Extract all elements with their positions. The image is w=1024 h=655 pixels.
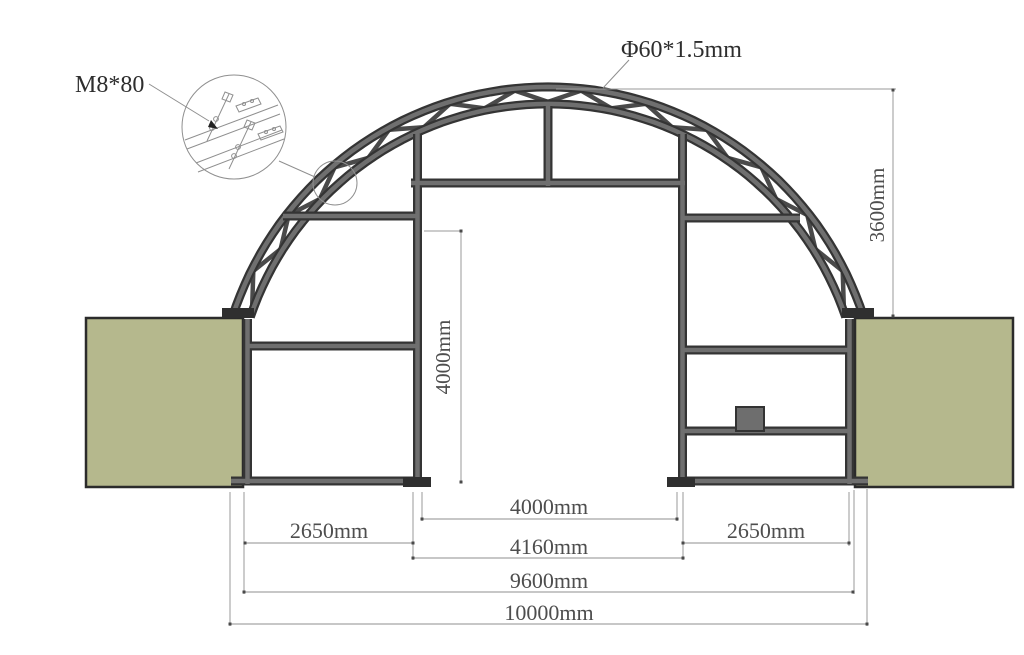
- dim-end-marker: [848, 542, 851, 545]
- dim-door-frame-width-label: 4160mm: [510, 534, 588, 559]
- dim-total-span-label: 10000mm: [504, 600, 593, 625]
- dim-end-marker: [892, 89, 895, 92]
- interior-frame: [222, 106, 874, 487]
- bolt-detail-icon: [185, 92, 284, 172]
- dim-door-height-label: 4000mm: [431, 320, 455, 395]
- shelter-cross-section-drawing: M8*80 Φ60*1.5mm 3600mm 4000mm 4000mm 265…: [0, 0, 1024, 655]
- dim-end-marker: [682, 542, 685, 545]
- base-plate: [403, 477, 431, 487]
- dim-right-bay-label: 2650mm: [727, 518, 805, 543]
- dim-arch-height-label: 3600mm: [865, 168, 889, 243]
- dim-end-marker: [852, 591, 855, 594]
- dim-left-bay-label: 2650mm: [290, 518, 368, 543]
- dim-end-marker: [421, 518, 424, 521]
- dim-end-marker: [892, 315, 895, 318]
- dim-end-marker: [460, 481, 463, 484]
- dim-end-marker: [682, 557, 685, 560]
- drawing-canvas: M8*80 Φ60*1.5mm 3600mm 4000mm 4000mm 265…: [0, 0, 1024, 655]
- tube-spec-label: Φ60*1.5mm: [621, 37, 742, 63]
- bolt-spec-label: M8*80: [75, 72, 144, 98]
- leader-line-to-arch: [279, 161, 315, 177]
- dim-end-marker: [412, 542, 415, 545]
- dim-end-marker: [229, 623, 232, 626]
- dim-end-marker: [460, 230, 463, 233]
- base-plate: [667, 477, 695, 487]
- base-plate: [222, 308, 254, 318]
- dim-inner-span-label: 9600mm: [510, 568, 588, 593]
- detail-circle: [182, 75, 286, 179]
- dim-end-marker: [243, 591, 246, 594]
- containers: [86, 318, 1013, 487]
- base-plate: [842, 308, 874, 318]
- right-container: [855, 318, 1013, 487]
- dim-end-marker: [866, 623, 869, 626]
- leader-line-bolt-label: [149, 84, 209, 121]
- dim-end-marker: [412, 557, 415, 560]
- dim-end-marker: [676, 518, 679, 521]
- leader-line-tube-label: [603, 60, 629, 88]
- equipment-box: [736, 407, 764, 431]
- dim-end-marker: [244, 542, 247, 545]
- dim-door-width-label: 4000mm: [510, 494, 588, 519]
- left-container: [86, 318, 243, 487]
